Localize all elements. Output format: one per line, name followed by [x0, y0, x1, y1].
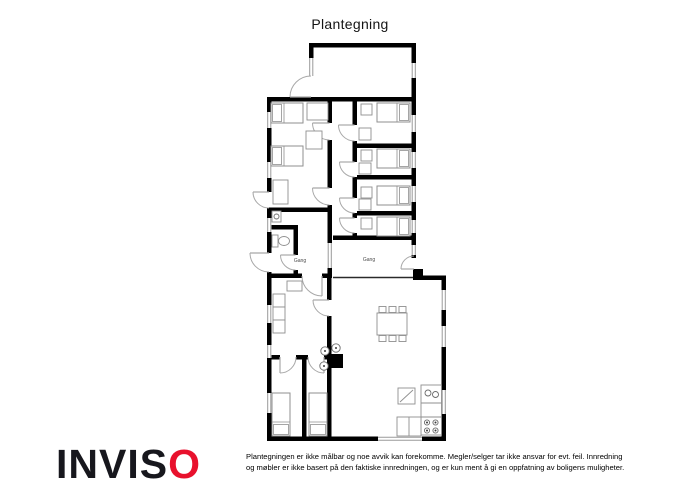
wall — [412, 202, 417, 220]
wardrobe — [359, 128, 371, 140]
wall — [412, 132, 417, 152]
cabinet — [273, 320, 285, 333]
wardrobe — [273, 180, 288, 204]
wall — [357, 175, 412, 180]
nightstand — [361, 218, 372, 229]
wardrobe — [359, 163, 371, 174]
wood-stove-dot — [324, 350, 326, 352]
toilet-tank — [272, 235, 278, 247]
door-swing-arc — [340, 218, 355, 233]
wall — [267, 232, 272, 253]
toilet-bowl — [279, 237, 290, 246]
door-swing-arc — [339, 125, 355, 141]
wall — [328, 205, 333, 212]
room-labels: GangGang — [294, 257, 375, 264]
wall — [412, 102, 417, 116]
wall — [353, 141, 358, 162]
wall — [357, 144, 412, 149]
wall — [353, 213, 358, 218]
stove-burner-dot — [426, 422, 428, 424]
kitchen-sink — [425, 390, 431, 396]
door-swing-arc — [250, 253, 269, 272]
wall — [442, 310, 447, 326]
bed-pillow — [400, 219, 409, 235]
door-swing-arc — [302, 276, 322, 296]
wall — [267, 225, 298, 230]
room-label: Gang — [363, 257, 375, 263]
shelf — [287, 281, 302, 291]
door-swing-arc — [340, 162, 355, 177]
door-swing-arc — [313, 300, 329, 316]
stove-burner-dot — [435, 422, 437, 424]
wardrobe — [359, 199, 371, 210]
wall — [442, 347, 447, 390]
stove-burner-dot — [426, 430, 428, 432]
wood-stove-dot — [323, 365, 325, 367]
wall — [267, 437, 378, 442]
bed-pillow — [274, 425, 289, 435]
nightstand — [361, 187, 372, 198]
wall — [267, 178, 272, 192]
disclaimer-line-2: og møbler er ikke basert på den faktiske… — [246, 463, 666, 474]
wall — [322, 274, 332, 279]
wall — [267, 358, 272, 393]
disclaimer-text: Plantegningen er ikke målbar og noe avvi… — [246, 452, 666, 473]
chair — [399, 307, 406, 313]
chimney — [330, 354, 343, 368]
wall — [267, 274, 302, 279]
wood-stove-dot — [335, 347, 337, 349]
bed-pillow — [311, 425, 326, 435]
nightstand — [361, 150, 372, 161]
door-swing-arc — [253, 192, 269, 208]
page-background: Plantegning GangGang INVISO Plantegninge… — [0, 0, 700, 500]
bed-pillow — [400, 105, 409, 121]
chair — [379, 307, 386, 313]
chair — [379, 336, 386, 342]
cabinet — [273, 294, 285, 307]
wall — [353, 102, 358, 126]
wall — [296, 355, 308, 360]
wall — [294, 230, 299, 256]
chair — [389, 336, 396, 342]
door-swing-arc — [340, 198, 355, 213]
wall — [328, 140, 333, 188]
bed-pillow — [400, 151, 409, 167]
bed-pillow — [273, 148, 282, 165]
room-label: Gang — [294, 258, 306, 264]
dining-table — [377, 313, 407, 335]
door-swing-arc — [313, 188, 330, 205]
wall — [412, 168, 417, 186]
door-swing-arc — [280, 357, 296, 373]
cabinet — [273, 307, 285, 320]
inviso-logo: INVISO — [56, 441, 201, 487]
chair — [399, 336, 406, 342]
kitchen-sink — [433, 392, 439, 398]
wall — [328, 212, 333, 243]
wall — [357, 211, 412, 216]
wall — [353, 177, 358, 198]
wall — [302, 360, 307, 437]
wall — [442, 414, 447, 441]
side-table — [307, 103, 328, 120]
wall — [412, 48, 417, 64]
door-swing-arc — [290, 76, 311, 97]
wall — [309, 48, 314, 59]
stove-burner-dot — [435, 430, 437, 432]
bed-pillow — [400, 188, 409, 204]
sink — [274, 214, 279, 219]
wall — [413, 269, 423, 280]
disclaimer-line-1: Plantegningen er ikke målbar og noe avvi… — [246, 452, 666, 463]
nightstand — [361, 104, 372, 115]
floor-plan: GangGang — [0, 0, 700, 500]
wall — [309, 43, 416, 48]
bed-pillow — [273, 105, 282, 122]
logo-text-black: INVIS — [56, 441, 168, 487]
chair — [389, 307, 396, 313]
wall — [327, 278, 332, 300]
logo-text-red-o: O — [168, 441, 201, 487]
wall — [267, 97, 416, 102]
wall — [412, 78, 417, 97]
desk — [306, 131, 322, 149]
wall — [267, 323, 272, 345]
